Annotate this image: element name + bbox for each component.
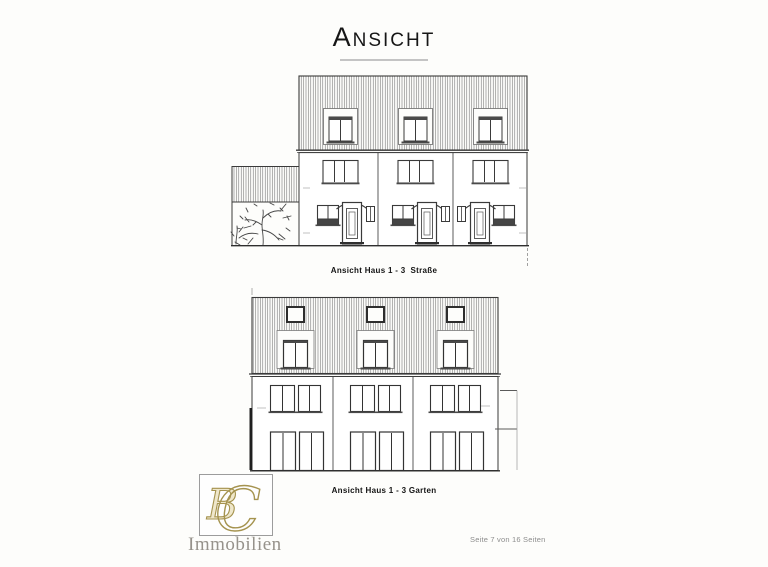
- dormer-windows: [324, 109, 508, 145]
- page-number-footer: Seite 7 von 16 Seiten: [470, 535, 546, 544]
- garden-elevation-drawing: [238, 284, 540, 484]
- garage: [232, 167, 299, 246]
- page-title: Ansicht: [0, 22, 768, 53]
- logo-monogram: B C: [200, 475, 272, 535]
- street-elevation-drawing: [225, 68, 540, 280]
- upper-floor-windows: [322, 161, 510, 185]
- title-underline: [340, 59, 428, 61]
- scanned-document-page: Ansicht: [0, 0, 768, 567]
- caption-garden-elevation: Ansicht Haus 1 - 3 Garten: [0, 486, 768, 495]
- logo-wordmark: Immobilien: [188, 534, 298, 556]
- caption-street-elevation: Ansicht Haus 1 - 3 Straße: [0, 266, 768, 275]
- logo-letter-c: C: [215, 475, 261, 535]
- company-logo: B C: [199, 474, 273, 536]
- tree-sketch: [231, 203, 291, 245]
